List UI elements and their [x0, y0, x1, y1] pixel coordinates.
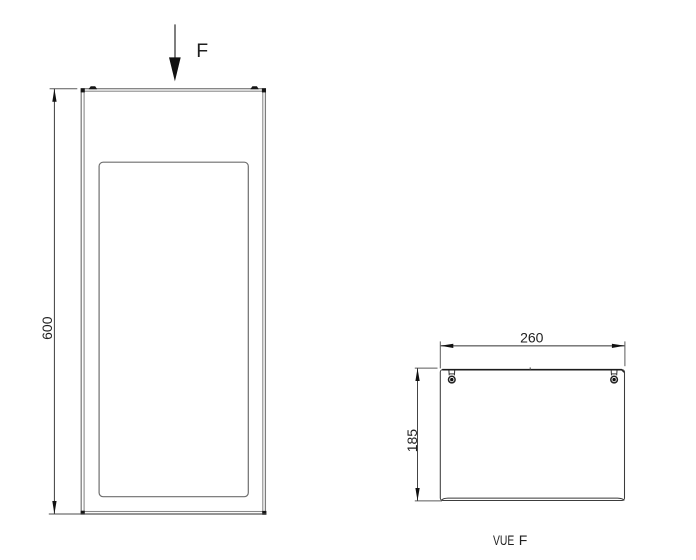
svg-text:600: 600	[39, 316, 55, 340]
svg-text:F: F	[519, 532, 528, 548]
svg-text:F: F	[196, 40, 208, 62]
svg-text:260: 260	[520, 329, 544, 345]
svg-text:VUE: VUE	[493, 532, 514, 548]
svg-text:185: 185	[404, 429, 420, 453]
